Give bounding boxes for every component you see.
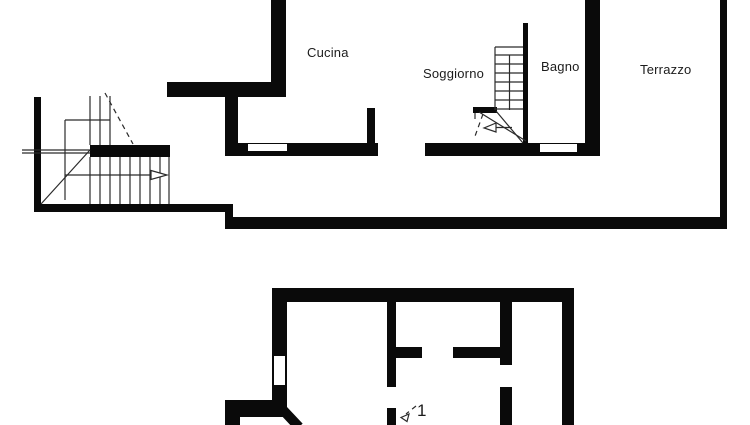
lower-interior-wall-a-lower (387, 408, 396, 425)
bagno-stub-wall (473, 107, 497, 113)
room-label-soggiorno: Soggiorno (423, 66, 484, 81)
window-kitchen (248, 144, 287, 151)
window-lower-left (272, 354, 287, 387)
stair-south-wall (36, 204, 232, 212)
room-label-terrazzo: Terrazzo (640, 62, 691, 77)
lower-stair-arrow-shaft (406, 406, 416, 414)
central-stair-diagonal (496, 111, 523, 143)
stair-west-wall (34, 97, 41, 212)
lower-interior-wall-c-lower (500, 387, 512, 425)
floor-plan-canvas: Cucina Soggiorno Bagno Terrazzo 1 (0, 0, 750, 425)
stair-detail-lines (0, 0, 750, 425)
window-bagno (540, 144, 577, 152)
lower-stair-number-label: 1 (417, 401, 427, 421)
lower-interior-wall-b-right (453, 347, 500, 358)
lower-interior-wall-c-upper (500, 302, 512, 365)
lower-interior-wall-a-upper (387, 302, 396, 387)
terrazzo-east-wall (720, 0, 727, 229)
room-label-cucina: Cucina (307, 45, 349, 60)
lower-left-wall-upper (272, 288, 287, 356)
stair-landing-wall (90, 145, 170, 157)
terrazzo-south-wall (225, 217, 727, 229)
room-label-bagno: Bagno (541, 59, 580, 74)
central-stair-arrowhead (484, 123, 496, 132)
stair-diagonal (41, 150, 90, 204)
bagno-terrazzo-wall (585, 0, 600, 156)
lower-right-wall (562, 288, 574, 425)
stair-up-arrowhead (151, 171, 167, 180)
stair-section-cut (105, 93, 133, 144)
central-stair-diagonal (479, 112, 526, 141)
lower-top-wall (272, 288, 574, 302)
kitchen-top-wall (167, 82, 286, 97)
lower-interior-wall-b-left (392, 347, 422, 358)
central-stair-section-cut (474, 114, 483, 139)
lower-southwest-stub (225, 400, 240, 425)
central-stair-wall (523, 23, 528, 143)
lower-stair-arrowhead (401, 414, 409, 422)
stair-step-connector (225, 204, 233, 229)
kitchen-stub-wall (367, 108, 375, 143)
